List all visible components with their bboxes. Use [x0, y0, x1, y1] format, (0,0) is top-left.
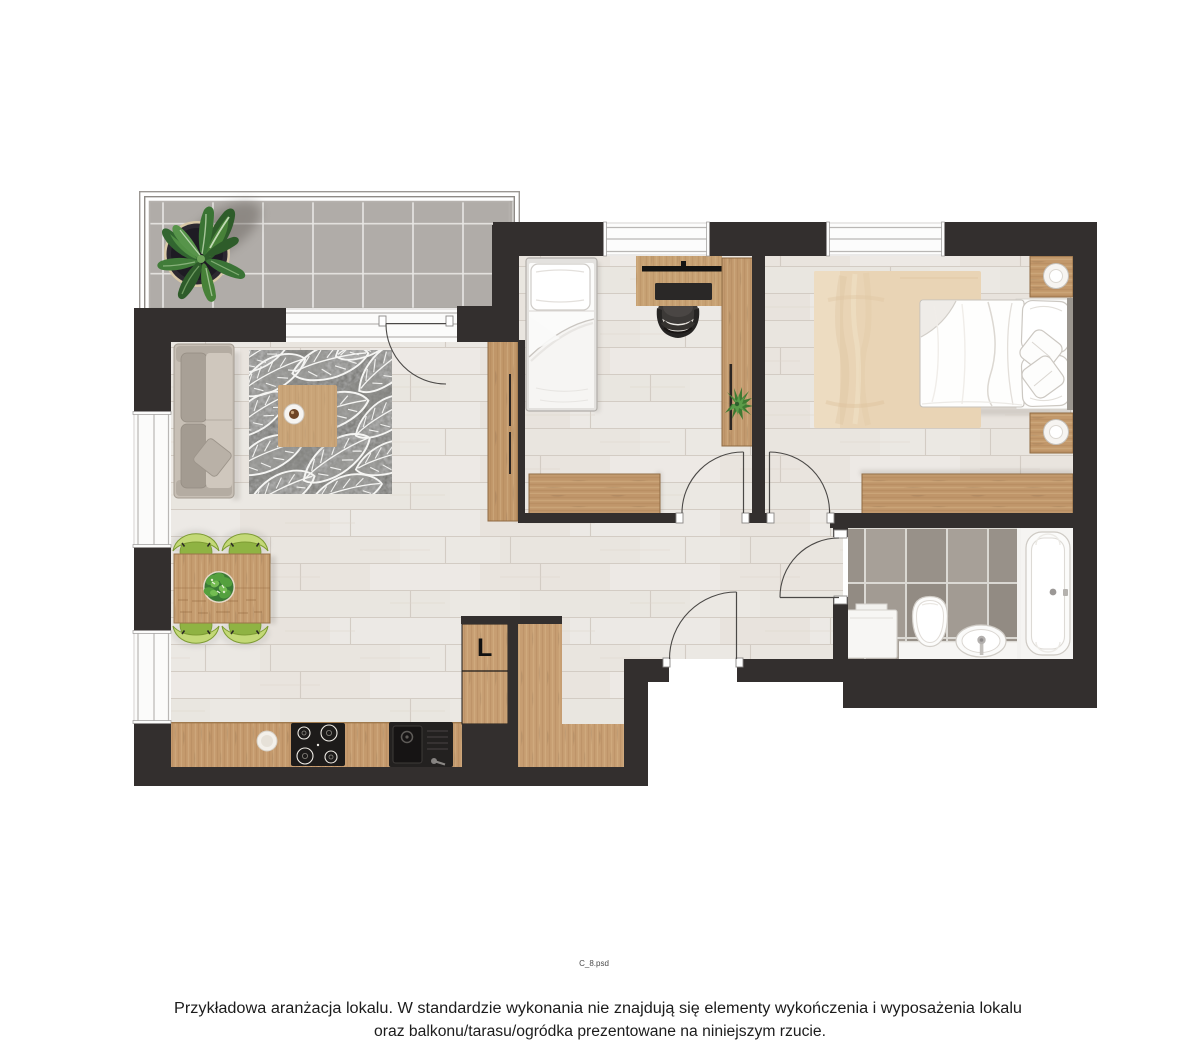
svg-text:Przykładowa aranżacja lokalu.: Przykładowa aranżacja lokalu. W standard… [174, 1000, 1022, 1017]
svg-text:L: L [477, 634, 492, 662]
svg-text:oraz balkonu/tarasu/ogródka pr: oraz balkonu/tarasu/ogródka prezentowane… [374, 1023, 826, 1040]
svg-text:C_8.psd: C_8.psd [579, 959, 609, 968]
